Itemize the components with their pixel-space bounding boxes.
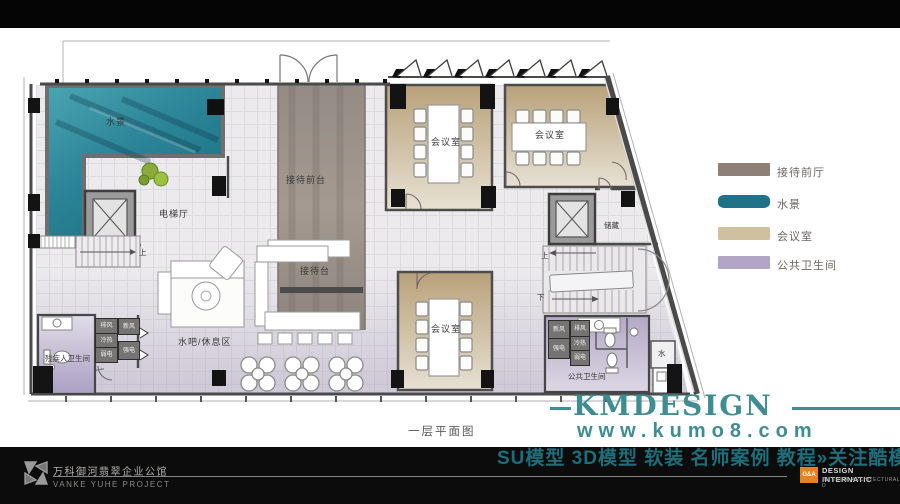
mech-room-exhaust-right: 排风	[570, 320, 590, 337]
mech-room-lowvolt-right: 弱电	[570, 350, 590, 366]
dimension-ticks	[65, 396, 607, 402]
ga-firm-subtitle: INTERIOR ARCHITECTURAL D	[822, 477, 900, 489]
legend-label-water: 水景	[777, 196, 801, 212]
legend-swatch-water	[718, 195, 770, 208]
presentation-sheet: 水景 电梯厅 接待前台 接待台 会议室 会议室 会议室 储藏 上 上 下 公共卫…	[0, 0, 900, 504]
label-stair-down-right: 下	[537, 293, 545, 303]
mech-room-power-left: 强电	[118, 341, 140, 360]
mech-room-hvac-right: 冷热	[570, 336, 590, 351]
label-stair-up-right: 上	[541, 251, 549, 261]
label-meeting-room-3: 会议室	[431, 324, 461, 334]
label-elevator-hall: 电梯厅	[159, 209, 189, 219]
label-reception-desk: 接待台	[300, 266, 330, 276]
label-meeting-room-2: 会议室	[535, 130, 565, 140]
mech-room-lowvolt-left: 弱电	[95, 347, 118, 363]
mech-room-fresh-right: 新风	[548, 320, 570, 339]
km-design-logo: KMDESIGN	[573, 391, 773, 420]
legend-label-reception: 接待前厅	[777, 164, 825, 180]
mech-room-hvac-left: 冷热	[95, 333, 118, 348]
label-public-wc: 公共卫生间	[568, 372, 606, 382]
mech-room-power-right: 强电	[548, 338, 570, 359]
legend-label-meeting: 会议室	[777, 228, 813, 244]
label-meeting-room-1: 会议室	[431, 137, 461, 147]
legend-label-wc: 公共卫生间	[777, 257, 837, 273]
mech-room-exhaust-left: 排风	[95, 318, 118, 334]
ga-logo-badge: G&A	[800, 467, 818, 483]
website-url: www.kumo8.com	[577, 420, 818, 442]
plan-title: 一层平面图	[408, 427, 476, 437]
footer-divider	[53, 476, 787, 477]
legend-swatch-wc	[718, 256, 770, 269]
entry-double-door	[280, 55, 337, 82]
logo-rule-left	[550, 407, 571, 410]
label-water: 水景	[106, 117, 126, 127]
legend-swatch-reception	[718, 163, 770, 176]
label-water-bar: 水吧/休息区	[178, 337, 232, 347]
label-water-room: 水	[658, 349, 666, 359]
legend-swatch-meeting	[718, 227, 770, 240]
logo-rule-right	[792, 407, 900, 410]
mech-room-fresh-left: 新风	[118, 318, 140, 335]
top-black-bar	[0, 0, 900, 28]
label-stair-up-left: 上	[139, 248, 147, 258]
sawtooth-glazing	[392, 60, 607, 78]
label-reception-hall: 接待前台	[286, 175, 326, 185]
label-accessible-wc: 残疾人卫生间	[45, 354, 90, 364]
project-title-en: VANKE YUHE PROJECT	[53, 480, 170, 489]
label-storage: 储藏	[604, 221, 619, 231]
